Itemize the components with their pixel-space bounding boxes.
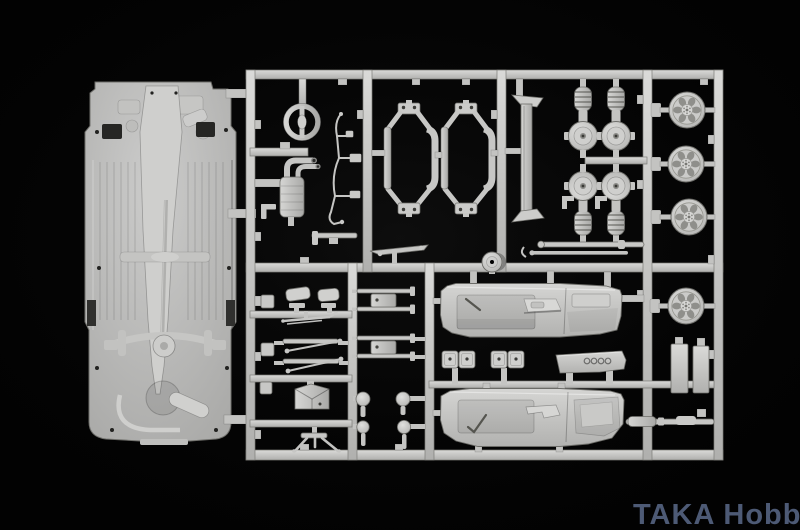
rear-wheel-well-right (226, 300, 235, 326)
front-wheel-well-right (196, 122, 215, 137)
rear-wheel-well-left (87, 300, 96, 326)
photo-stage: TAKA Hobby (0, 0, 800, 530)
model-kit-sprue-photo (0, 0, 800, 530)
front-wheel-well-left (102, 124, 122, 139)
car-chassis-plate (85, 82, 236, 445)
door-panel-lower (433, 383, 624, 452)
rear-axle (104, 330, 226, 357)
watermark-text: TAKA Hobby (633, 499, 800, 530)
